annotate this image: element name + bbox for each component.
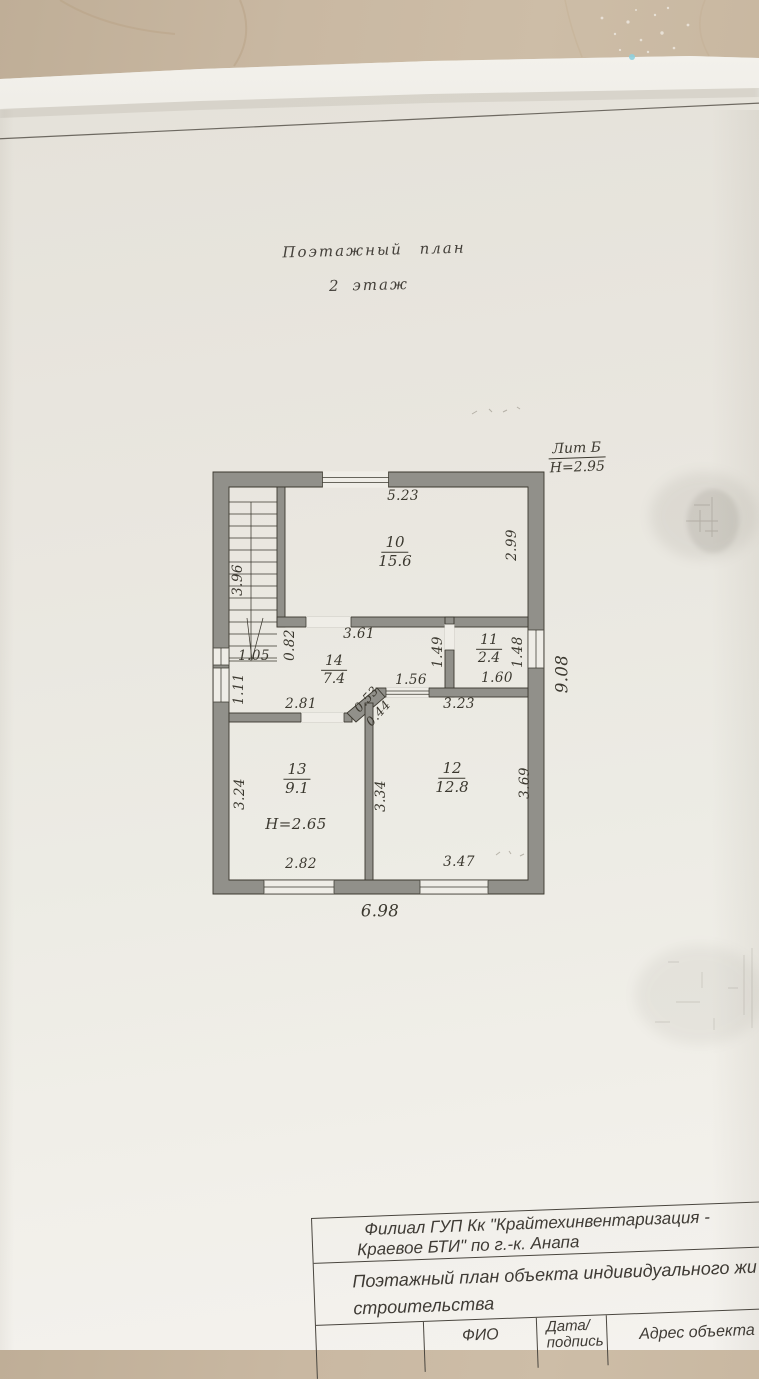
dim-room10-width: 5.23 xyxy=(387,488,419,504)
dim-room11-side-right: 1.48 xyxy=(510,636,526,668)
dim-building-depth: 9.08 xyxy=(553,655,572,693)
title-block: Филиал ГУП Кк "Крайтехинвентаризация - К… xyxy=(311,1201,759,1379)
stair-partition-wall xyxy=(277,487,285,627)
lit-height: Н=2.95 xyxy=(549,458,606,477)
dim-building-width: 6.98 xyxy=(361,902,399,921)
room-12-area: 12.8 xyxy=(435,779,468,796)
room-13-label: 13 9.1 xyxy=(283,762,310,797)
room-11-label: 11 2.4 xyxy=(476,633,502,665)
room-10-area: 15.6 xyxy=(378,553,411,570)
room-14-number: 14 xyxy=(321,654,347,671)
room-12-number: 12 xyxy=(438,761,465,779)
column-header-date-signature: Дата/ подпись xyxy=(536,1315,608,1368)
dim-corridor-niche: 1.56 xyxy=(395,672,427,688)
lit-name: Лит Б xyxy=(548,439,605,459)
dim-stairs-length: 3.96 xyxy=(230,564,246,596)
dim-room13-side: 3.24 xyxy=(232,778,248,810)
room12-room13-partition xyxy=(365,703,373,880)
room-10-label: 10 15.6 xyxy=(378,535,411,570)
dim-corridor-width: 3.61 xyxy=(343,626,375,642)
dim-stairs-width: 1.05 xyxy=(238,648,270,664)
dim-room13-bottom: 2.82 xyxy=(285,856,317,872)
title-block-empty-cell xyxy=(316,1322,425,1376)
room-13-area: 9.1 xyxy=(283,780,310,797)
column-header-address: Адрес объекта xyxy=(606,1309,759,1366)
paper-smudges xyxy=(472,407,759,1045)
table-surface-decoration xyxy=(60,0,709,66)
room-14-area: 7.4 xyxy=(321,671,347,687)
dim-partition: 3.34 xyxy=(373,780,389,812)
building-letter-mark: Лит Б Н=2.95 xyxy=(548,439,606,476)
dim-room11-width: 1.60 xyxy=(481,670,513,686)
room-11-number: 11 xyxy=(476,633,502,650)
dim-stairs-offset: 0.82 xyxy=(282,629,298,661)
room-12-label: 12 12.8 xyxy=(435,761,468,796)
room-13-number: 13 xyxy=(283,762,310,780)
dim-wall-pier: 1.11 xyxy=(231,673,247,705)
room-10-number: 10 xyxy=(381,535,408,553)
dim-room12-top: 3.23 xyxy=(443,696,475,712)
page-subtitle: 2 этаж xyxy=(329,275,409,295)
sparkle-decoration xyxy=(601,7,690,53)
dim-room12-bottom: 3.47 xyxy=(443,854,475,870)
sheet-frame-line xyxy=(0,103,759,139)
floor-plan-drawing xyxy=(0,0,759,1350)
dim-room10-side: 2.99 xyxy=(504,529,520,561)
dim-room12-side: 3.69 xyxy=(517,767,533,799)
photographed-document: { "colors": { "wall_gray": "#91908a", "i… xyxy=(0,0,759,1350)
room-13-ceiling-height: Н=2.65 xyxy=(265,815,326,833)
room-11-area: 2.4 xyxy=(476,650,502,666)
room-14-label: 14 7.4 xyxy=(321,654,347,686)
dim-room13-top: 2.81 xyxy=(285,696,317,712)
date-header-line-2: подпись xyxy=(546,1333,607,1351)
column-header-fio: ФИО xyxy=(423,1318,538,1372)
blue-speck xyxy=(629,54,635,60)
dim-room11-side-left: 1.49 xyxy=(430,636,446,668)
